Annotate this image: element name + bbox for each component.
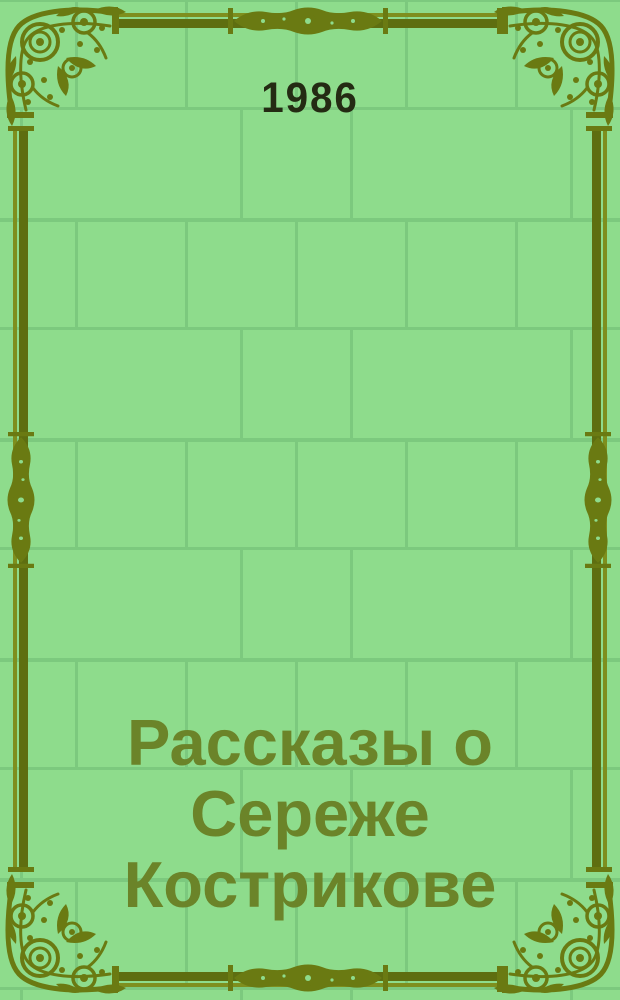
mid-ornament-bottom: [228, 965, 388, 992]
book-title: Рассказы о Сереже Кострикове: [0, 707, 620, 920]
mid-ornament-right: [585, 432, 612, 568]
year-label: 1986: [19, 74, 602, 123]
title-line-1: Рассказы о: [0, 707, 620, 778]
title-line-2: Сереже: [0, 778, 620, 849]
mid-ornament-left: [8, 432, 35, 568]
book-cover: 1986 Рассказы о Сереже Кострикове: [0, 0, 620, 1000]
title-line-3: Кострикове: [0, 849, 620, 920]
mid-ornament-top: [228, 8, 388, 35]
